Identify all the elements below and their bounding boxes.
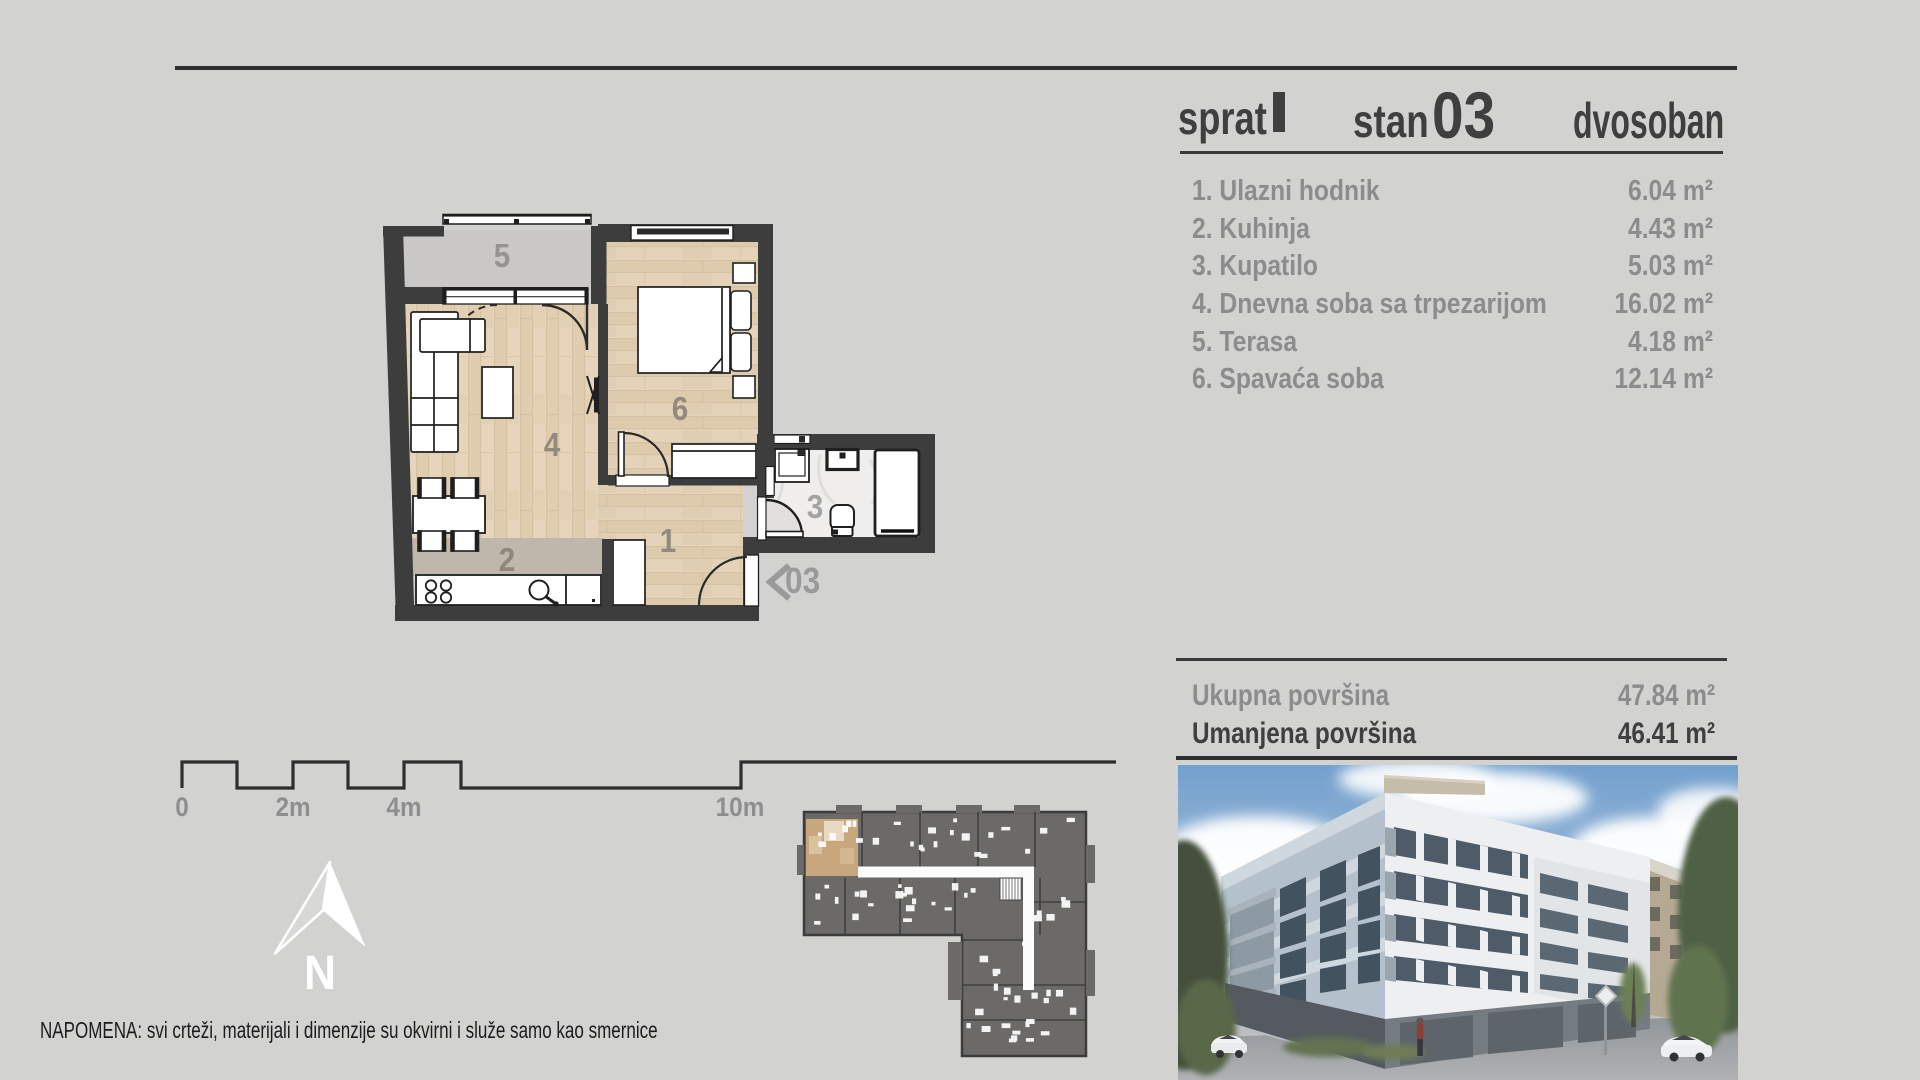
svg-text:1: 1 — [660, 523, 677, 560]
svg-text:10m: 10m — [716, 793, 765, 822]
svg-text:5: 5 — [494, 238, 511, 275]
svg-text:4: 4 — [544, 427, 561, 464]
svg-text:6: 6 — [672, 391, 689, 428]
svg-text:2m: 2m — [275, 793, 310, 822]
svg-text:4m: 4m — [386, 793, 421, 822]
svg-text:0: 0 — [175, 793, 189, 822]
svg-text:2: 2 — [499, 542, 516, 579]
svg-text:3: 3 — [807, 489, 824, 526]
svg-text:N: N — [304, 945, 336, 999]
svg-text:03: 03 — [785, 561, 820, 601]
